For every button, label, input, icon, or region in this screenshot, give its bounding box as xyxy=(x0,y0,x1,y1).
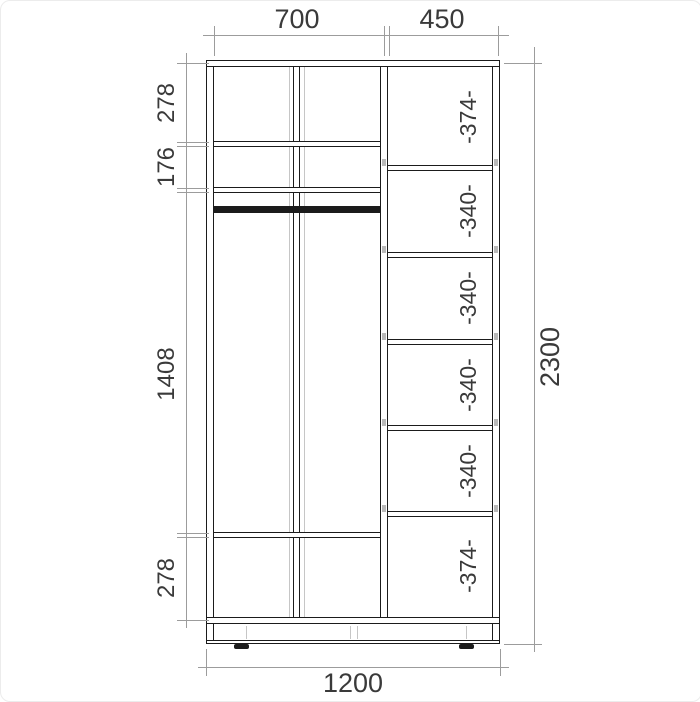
plinth-base-panel xyxy=(206,640,500,644)
left-shelf-1 xyxy=(213,141,381,147)
right-foot xyxy=(459,644,474,649)
extension-line xyxy=(177,620,209,621)
extension-line xyxy=(177,533,209,534)
plinth-tick xyxy=(246,626,247,639)
dim-label-left-1408: 1408 xyxy=(152,334,182,414)
extension-line xyxy=(214,26,215,56)
left-side-panel xyxy=(206,60,214,644)
right-side-panel xyxy=(492,60,500,644)
extension-line xyxy=(504,644,542,645)
connector-mark xyxy=(382,333,386,340)
connector-mark xyxy=(494,419,498,426)
dim-label-overall-width-1200: 1200 xyxy=(313,668,393,698)
extension-line xyxy=(384,26,385,56)
connector-mark xyxy=(494,505,498,512)
right-shelf-5 xyxy=(387,511,493,517)
connector-mark xyxy=(382,505,386,512)
hanging-rod xyxy=(214,206,380,213)
compartment-label-340-4: -340- xyxy=(453,431,483,511)
compartment-label-340-3: -340- xyxy=(453,345,483,425)
connector-mark xyxy=(382,419,386,426)
extension-line xyxy=(498,26,499,56)
plinth-tick xyxy=(466,626,467,639)
compartment-label-340-2: -340- xyxy=(453,258,483,338)
connector-mark xyxy=(494,333,498,340)
left-bottom-shelf xyxy=(213,532,381,538)
extension-line xyxy=(206,649,207,676)
dim-label-overall-height-2300: 2300 xyxy=(535,317,565,397)
connector-mark xyxy=(382,246,386,253)
connector-mark xyxy=(382,159,386,166)
dim-label-top-450: 450 xyxy=(407,4,477,34)
connector-mark xyxy=(494,159,498,166)
compartment-label-374-bottom: -374- xyxy=(453,526,483,606)
left-shelf-2 xyxy=(213,187,381,193)
compartment-label-374-top: -374- xyxy=(453,77,483,157)
compartment-label-340-1: -340- xyxy=(453,171,483,251)
dim-label-left-176: 176 xyxy=(152,127,182,207)
extension-line xyxy=(504,63,542,64)
plinth-tick xyxy=(357,626,358,639)
interior-bottom-panel xyxy=(206,617,500,624)
top-dimension-line xyxy=(203,35,509,36)
top-panel xyxy=(206,60,500,67)
extension-line xyxy=(389,26,390,56)
dim-label-top-700: 700 xyxy=(262,4,332,34)
left-dimension-line xyxy=(186,53,187,628)
extension-line xyxy=(500,649,501,676)
dim-label-left-278-bottom: 278 xyxy=(152,538,182,618)
wardrobe-dimension-diagram: 700 450 278 176 1408 278 2300 1200 -374-… xyxy=(0,0,700,702)
connector-mark xyxy=(494,246,498,253)
left-foot xyxy=(234,644,249,649)
plinth-tick xyxy=(350,626,351,639)
